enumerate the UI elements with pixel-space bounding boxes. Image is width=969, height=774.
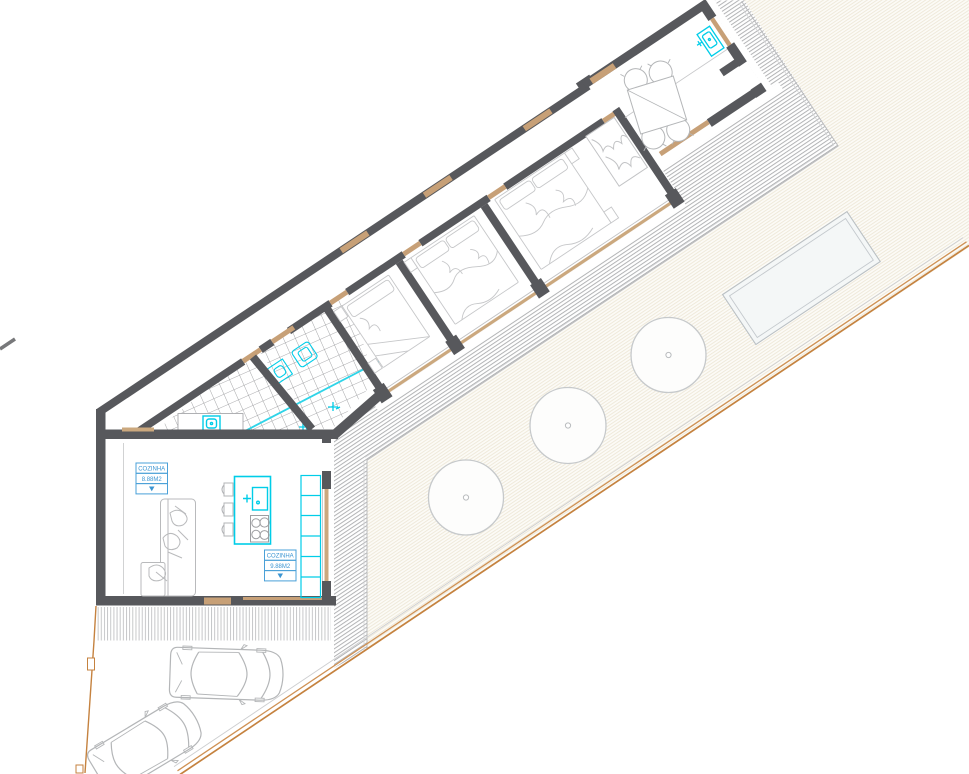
svg-text:8.88M2: 8.88M2	[142, 477, 163, 483]
svg-text:COZINHA: COZINHA	[138, 467, 165, 473]
svg-text:9.88M2: 9.88M2	[270, 564, 291, 570]
svg-text:COZINHA: COZINHA	[267, 554, 294, 560]
